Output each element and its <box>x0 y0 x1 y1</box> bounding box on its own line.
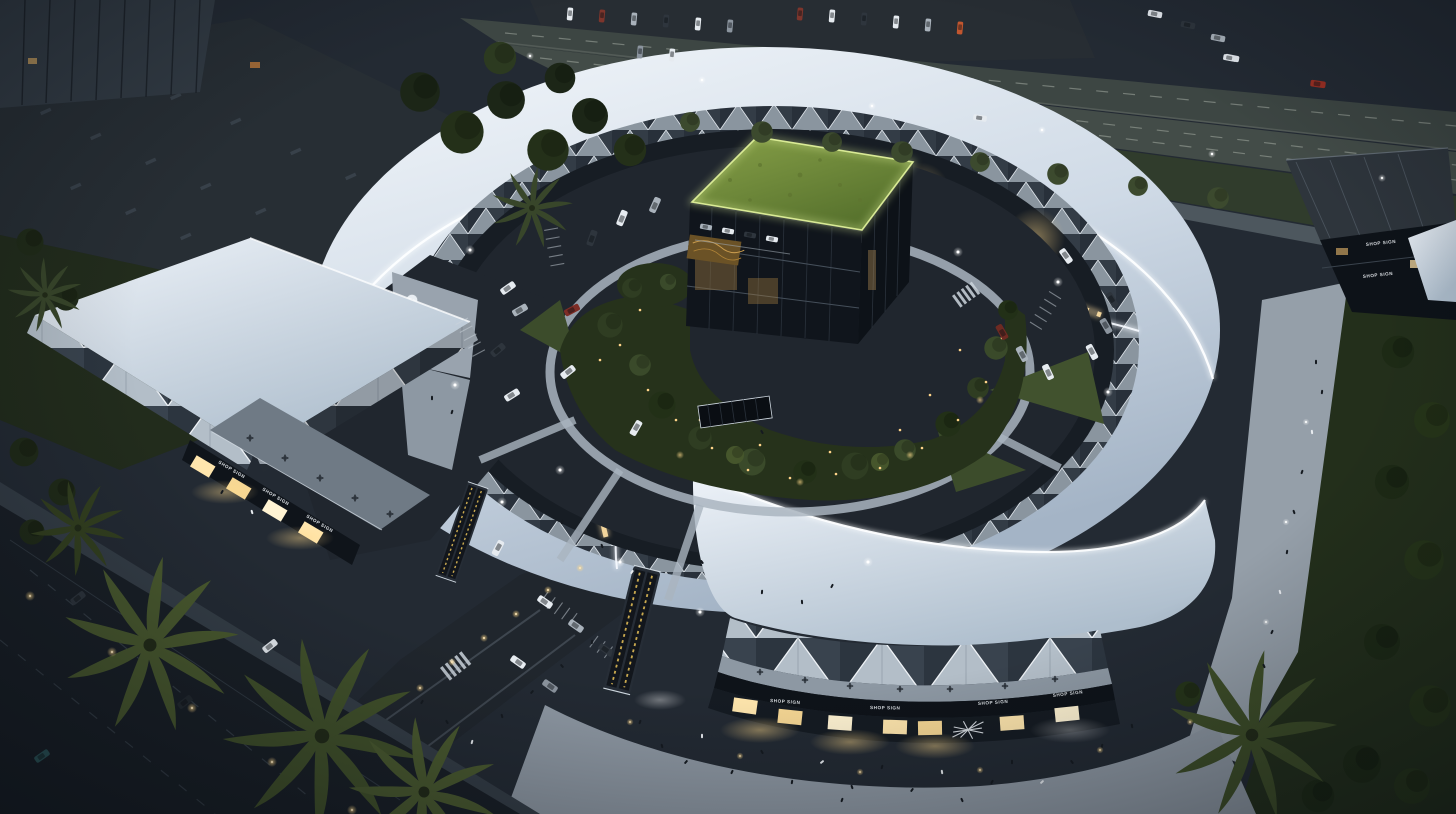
dusk-vignette <box>0 0 1456 814</box>
aerial-render-scene: SHOP SIGN SHOP SIGN SHOP SIGN SHOP SIGN … <box>0 0 1456 814</box>
render-canvas: SHOP SIGN SHOP SIGN SHOP SIGN SHOP SIGN … <box>0 0 1456 814</box>
